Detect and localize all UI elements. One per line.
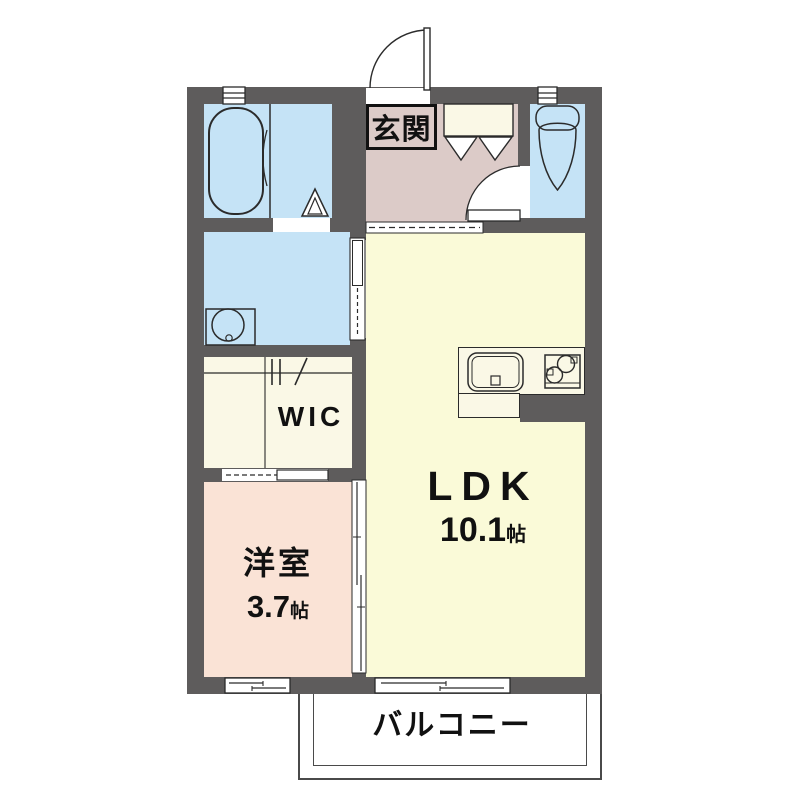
ldk-window-icon — [375, 678, 510, 693]
western-room-area-unit: 帖 — [290, 601, 309, 622]
toilet-icon — [536, 106, 579, 190]
bathtub-icon — [209, 108, 267, 214]
washroom-door-icon — [350, 238, 365, 340]
stove-icon — [545, 355, 580, 388]
western-room-window-icon — [225, 678, 290, 693]
entrance-label: 玄関 — [366, 104, 437, 150]
entrance-swing-door-icon — [366, 28, 430, 104]
western-room-area-value: 3.7 — [247, 589, 290, 624]
ldk-size: 10.1帖 — [383, 513, 583, 547]
floor-plan: 玄関 WIC LDK 10.1帖 洋室 3.7帖 バルコニー — [0, 0, 800, 800]
bath-window-icon — [223, 87, 245, 104]
sliding-door-icon — [352, 480, 366, 673]
balcony-label: バルコニー — [352, 711, 552, 741]
entrance-label-text: 玄関 — [371, 106, 431, 148]
western-room-label: 洋室 — [208, 547, 348, 579]
kitchen-sink-icon — [468, 353, 523, 391]
ldk-area-value: 10.1 — [440, 511, 506, 549]
ldk-area-unit: 帖 — [506, 524, 526, 546]
bath-folding-door-icon — [273, 189, 330, 232]
wic-hanger-pipe-icon — [204, 358, 352, 385]
toilet-window-icon — [538, 87, 557, 104]
washing-machine-icon — [206, 309, 255, 345]
western-room-size: 3.7帖 — [208, 591, 348, 622]
shoe-cabinet-icon — [444, 104, 513, 160]
entrance-step-line — [366, 222, 483, 233]
ldk-label: LDK — [383, 466, 583, 507]
wic-sliding-door-icon — [222, 469, 328, 481]
wic-label: WIC — [265, 403, 357, 431]
toilet-swing-door-icon — [466, 166, 530, 221]
